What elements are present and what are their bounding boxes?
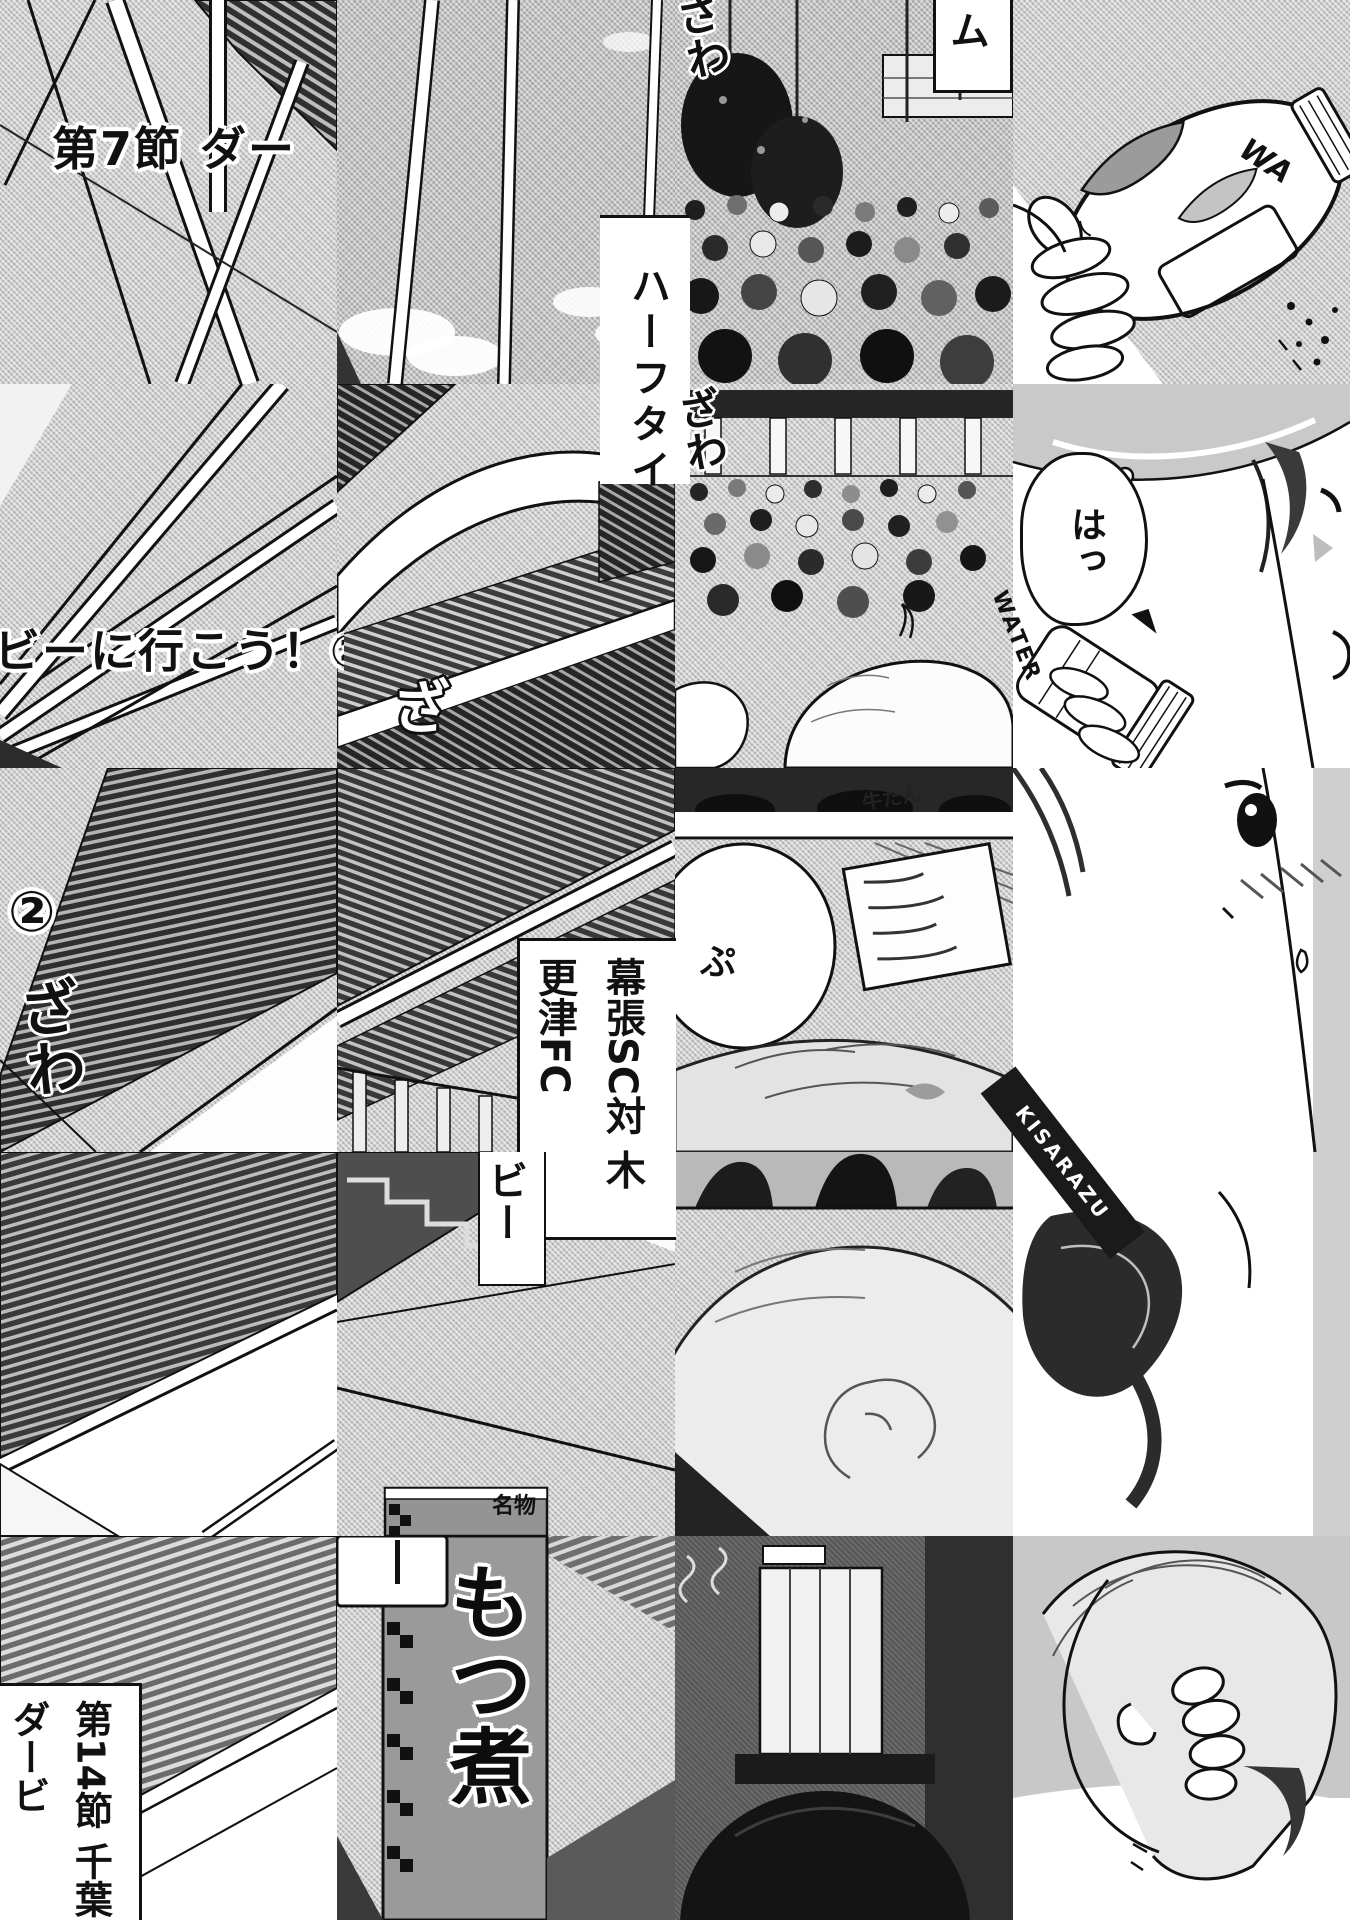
- gasp-bubble: はっ: [1020, 452, 1148, 626]
- tile-r1c4-bottle-hand: [1013, 0, 1350, 384]
- hair-swirl-art: [1013, 1152, 1350, 1536]
- blush-face-art: [1013, 768, 1350, 1152]
- halftime-caption-box-continued: ム: [933, 0, 1013, 93]
- next-match-caption-text: 第14節 千葉ダービ: [0, 1700, 121, 1920]
- banner-large-text: もつ煮: [440, 1560, 525, 1920]
- tile-r1c1-stadium-wall: [0, 0, 337, 384]
- match-line1: 幕張SC対: [599, 957, 645, 1135]
- tile-r2c1-strut-fan: [0, 384, 337, 768]
- next-line1: 第14節: [68, 1700, 112, 1829]
- head-back-art: [675, 1152, 1013, 1536]
- strut-fan-art: [0, 384, 337, 768]
- banner-small-text: 名物: [492, 1496, 536, 1519]
- halftime-caption-box: ハーフタイ: [600, 215, 690, 484]
- sfx-zawa-roof: ざわ: [10, 975, 85, 1101]
- sfx-pu: ぷ: [700, 944, 736, 981]
- derby-fragment-text: ビー: [491, 1160, 533, 1244]
- gasp-text: はっ: [1064, 506, 1104, 578]
- stadium-struts-art: [0, 0, 337, 384]
- chapter-title-part1: 第7節 ダー: [52, 126, 296, 174]
- tile-r4c3-head-back: [675, 1152, 1013, 1536]
- next-match-caption-box: 第14節 千葉ダービ: [0, 1683, 142, 1920]
- girl-profile-art: [1013, 1536, 1350, 1920]
- dark-stall-art: [675, 1536, 1013, 1920]
- chapter-title-part2: ビーに行こう！②: [0, 628, 344, 676]
- sfx-za: ざ: [392, 678, 450, 738]
- halftime-caption-text: ハーフタイ: [623, 265, 667, 495]
- tile-r4c1-roof-edge: [0, 1152, 337, 1536]
- chapter-number-mark: ②: [8, 884, 57, 942]
- halftime-caption-text-continued: ム: [951, 10, 995, 52]
- tile-r5c4-girl-profile: [1013, 1536, 1350, 1920]
- tile-r4c4-hair-swirl: [1013, 1152, 1350, 1536]
- tile-r5c3-dark-stall: [675, 1536, 1013, 1920]
- tile-r3c4-blush-face: [1013, 768, 1350, 1152]
- roof-edge-art: [0, 1152, 337, 1536]
- manga-page: 第7節 ダー ビーに行こう！② ② ハーフタイ ム 幕張SC対 木更津FC ビー…: [0, 0, 1350, 1920]
- bottle-hand-art: [1013, 0, 1350, 384]
- derby-fragment-box: ビー: [478, 1152, 546, 1286]
